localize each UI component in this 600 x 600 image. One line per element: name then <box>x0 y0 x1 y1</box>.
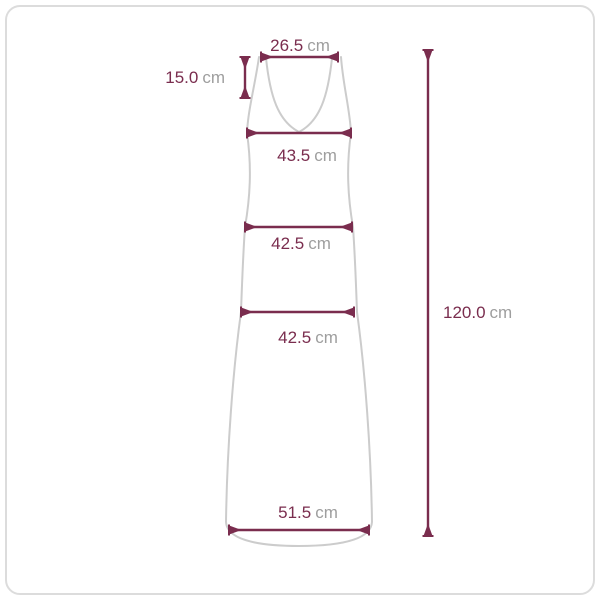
bust-width-value: 43.5 <box>277 146 310 165</box>
top-width-value: 26.5 <box>270 36 303 55</box>
strap-length-unit: cm <box>202 68 225 87</box>
waist-width-unit: cm <box>308 234 331 253</box>
dress-size-diagram: 26.5cm 15.0cm 43.5cm 42.5cm 42.5cm 51.5c… <box>0 0 600 600</box>
total-length-value: 120.0 <box>443 303 486 322</box>
strap-length-label: 15.0cm <box>165 69 225 86</box>
hip-width-value: 42.5 <box>278 328 311 347</box>
top-width-label: 26.5cm <box>270 37 330 54</box>
bust-width-unit: cm <box>314 146 337 165</box>
hip-width-label: 42.5cm <box>278 329 338 346</box>
strap-length-value: 15.0 <box>165 68 198 87</box>
strap-length-dimension <box>240 57 251 98</box>
hem-width-value: 51.5 <box>278 503 311 522</box>
waist-width-label: 42.5cm <box>271 235 331 252</box>
hip-width-unit: cm <box>315 328 338 347</box>
total-length-unit: cm <box>490 303 513 322</box>
total-length-dimension <box>423 50 434 536</box>
bust-width-label: 43.5cm <box>277 147 337 164</box>
hem-width-unit: cm <box>315 503 338 522</box>
hem-width-label: 51.5cm <box>278 504 338 521</box>
top-width-unit: cm <box>307 36 330 55</box>
total-length-label: 120.0cm <box>443 304 512 321</box>
waist-width-value: 42.5 <box>271 234 304 253</box>
